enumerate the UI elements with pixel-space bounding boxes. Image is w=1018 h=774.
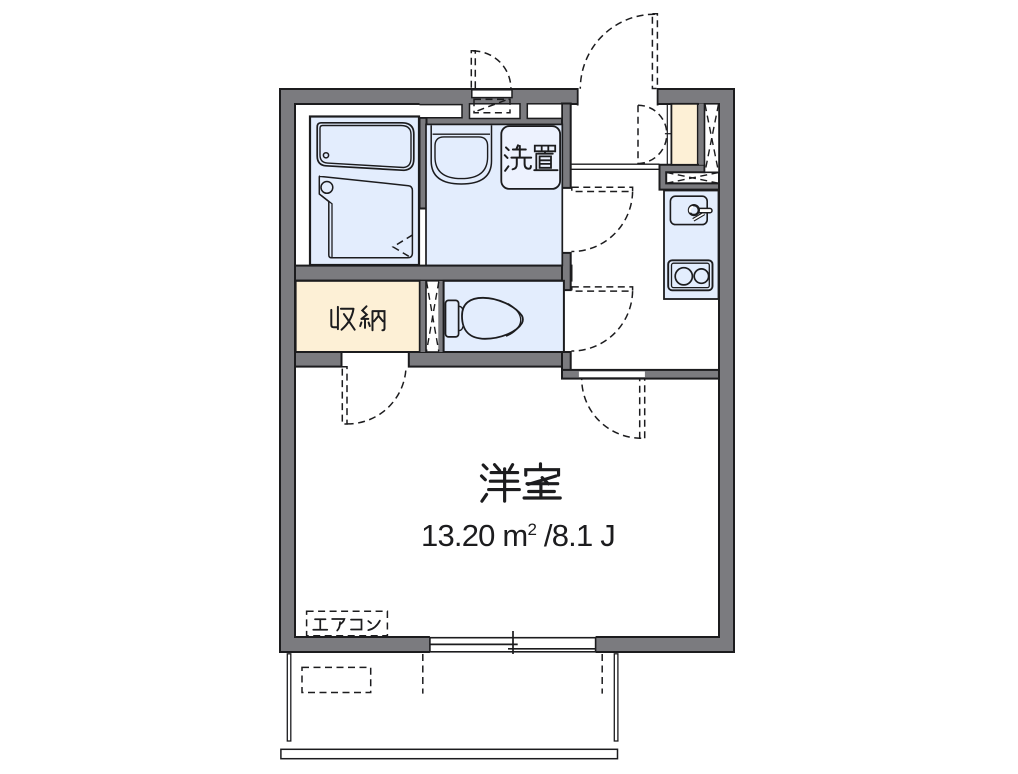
svg-text:13.20 m2 /8.1 J: 13.20 m2 /8.1 J bbox=[421, 518, 615, 553]
